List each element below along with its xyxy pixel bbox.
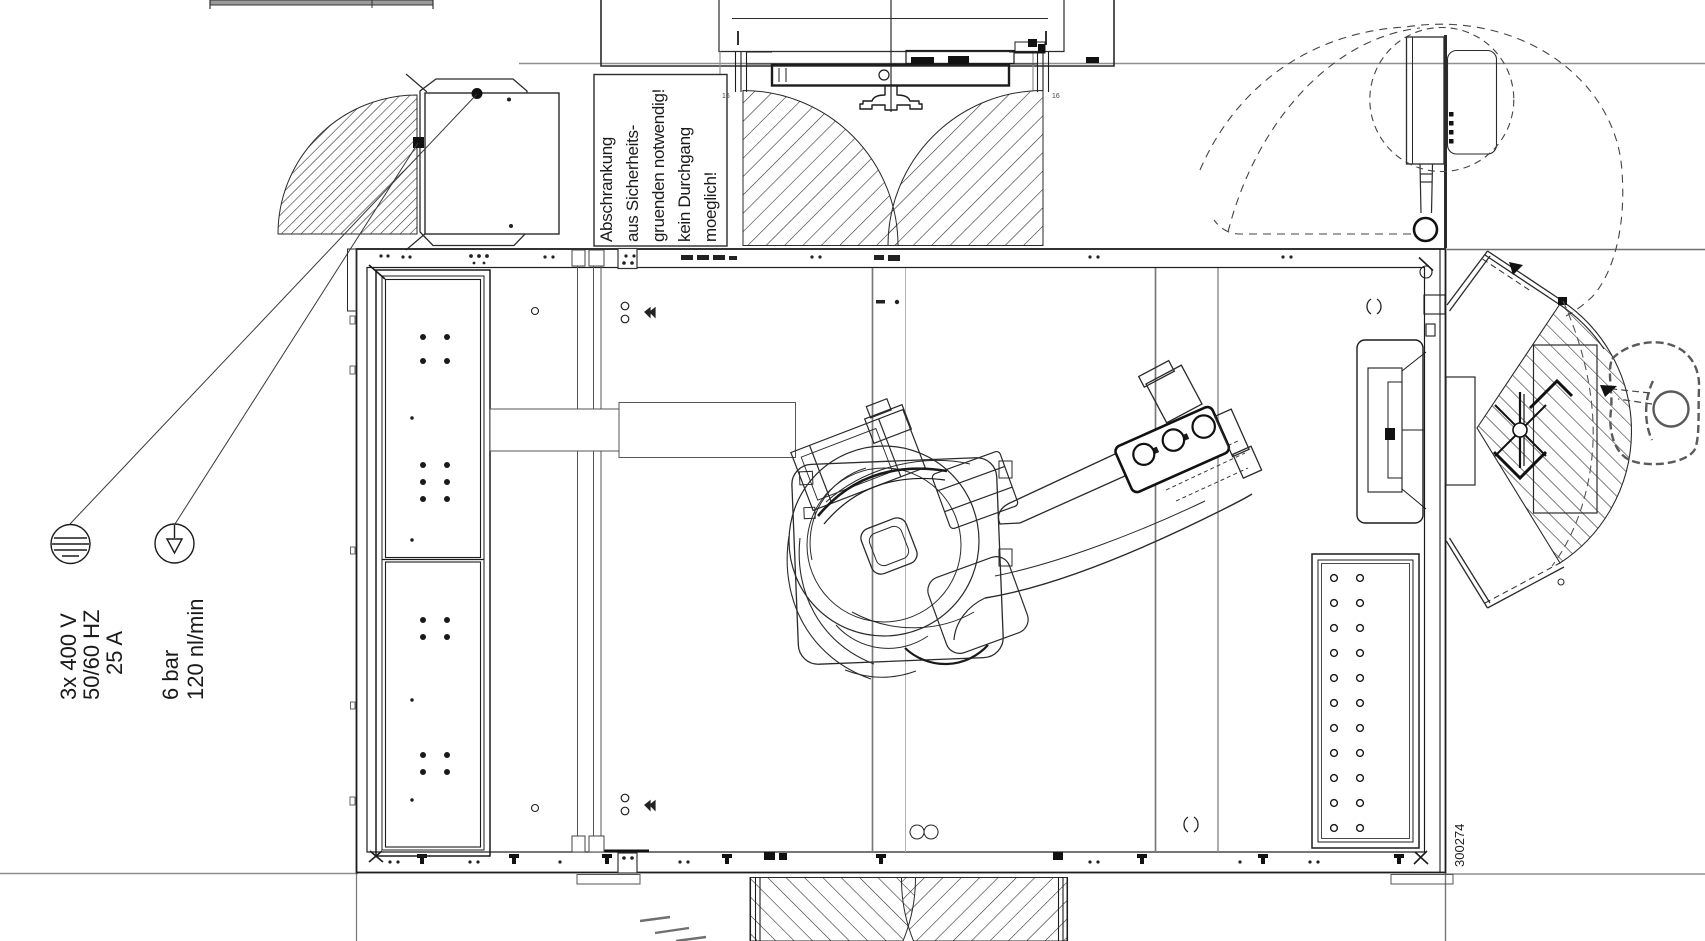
svg-text:16: 16: [1052, 93, 1060, 100]
svg-text:50/60 HZ: 50/60 HZ: [79, 610, 104, 701]
svg-text:25 A: 25 A: [102, 631, 127, 675]
svg-text:3x 400 V: 3x 400 V: [56, 613, 81, 700]
svg-text:120 nl/min: 120 nl/min: [183, 598, 208, 700]
svg-text:300274: 300274: [1452, 824, 1467, 867]
svg-text:kein Durchgang: kein Durchgang: [675, 127, 694, 242]
svg-text:6 bar: 6 bar: [158, 650, 183, 700]
svg-text:aus Sicherheits-: aus Sicherheits-: [623, 125, 642, 242]
svg-text:moeglich!: moeglich!: [701, 172, 720, 242]
svg-text:Abschrankung: Abschrankung: [597, 137, 616, 242]
svg-text:16: 16: [722, 93, 730, 100]
svg-text:gruenden notwendig!: gruenden notwendig!: [649, 89, 668, 242]
